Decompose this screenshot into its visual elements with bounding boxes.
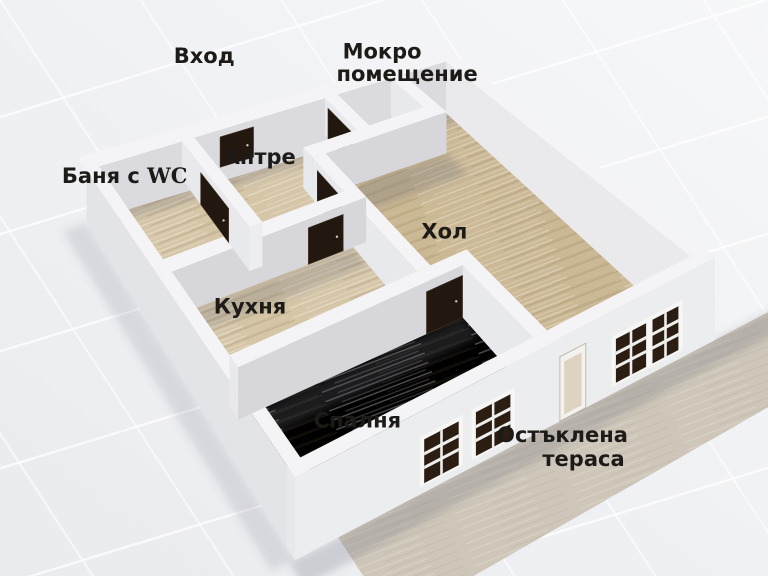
window-living-2-mullion-v	[664, 312, 667, 357]
room-label-bathroom: Баня с WC	[62, 163, 188, 188]
wall-bathroom-east-cap	[250, 222, 263, 271]
door-terrace	[564, 352, 581, 414]
window-bedroom-2-mullion-v	[492, 403, 495, 448]
room-label-bathroom-prefix: Баня с	[62, 164, 147, 188]
room-label-wet-room-line1: Мокро	[343, 39, 422, 63]
room-label-terrace-line1: Остъклена	[497, 423, 628, 447]
room-label-wet-room-line2: помещение	[336, 62, 477, 86]
room-label-hallway: Антре	[224, 145, 296, 169]
door-kitchen-handle	[336, 236, 338, 238]
window-bedroom-1-mullion-v	[440, 430, 443, 475]
room-label-bathroom-wc: WC	[146, 163, 187, 188]
room-label-kitchen: Кухня	[214, 295, 286, 319]
window-living-1-mullion-v	[630, 330, 633, 375]
door-bathroom-handle	[222, 219, 224, 221]
floor-plan-canvas: ВходМокропомещениеАнтреБаня с WCХолКухня…	[0, 0, 768, 576]
door-bedroom-handle	[455, 300, 457, 302]
room-label-bedroom: Спалня	[314, 408, 401, 432]
wall-south-cap	[287, 465, 296, 560]
room-label-entrance: Вход	[174, 44, 235, 68]
room-label-terrace-line2: тераса	[542, 447, 624, 471]
room-label-living-room: Хол	[421, 219, 467, 243]
floor-plan-scene: ВходМокропомещениеАнтреБаня с WCХолКухня…	[0, 0, 768, 576]
